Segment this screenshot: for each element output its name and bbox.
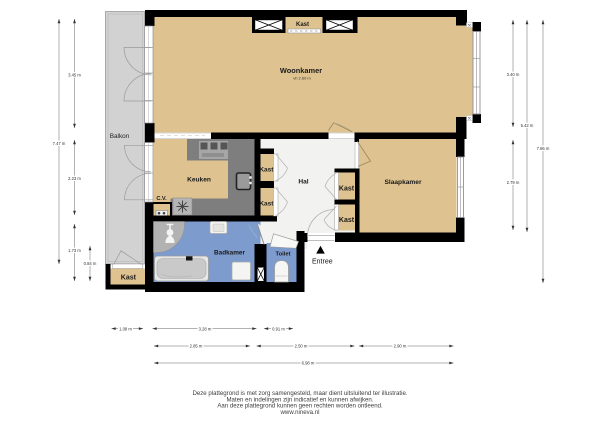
svg-text:0.84 m: 0.84 m <box>84 261 97 266</box>
svg-text:7.86 m: 7.86 m <box>537 146 550 151</box>
svg-text:5.42 m: 5.42 m <box>521 123 534 128</box>
svg-text:50: 50 <box>468 24 472 28</box>
svg-text:Kast: Kast <box>121 274 137 281</box>
svg-text:www.nineva.nl: www.nineva.nl <box>280 409 320 416</box>
svg-text:vh 2.69 m: vh 2.69 m <box>293 76 311 81</box>
svg-text:C.V.: C.V. <box>156 196 167 202</box>
svg-text:7.47 m: 7.47 m <box>53 141 66 146</box>
svg-text:Keuken: Keuken <box>187 177 211 184</box>
svg-text:2.85 m: 2.85 m <box>190 344 203 349</box>
svg-text:2.90 m: 2.90 m <box>394 344 407 349</box>
svg-text:2.23 m: 2.23 m <box>68 176 81 181</box>
svg-text:Kast: Kast <box>296 22 309 28</box>
svg-text:Kast: Kast <box>259 201 274 208</box>
svg-text:Kast: Kast <box>259 166 274 173</box>
svg-text:Entree: Entree <box>312 259 333 266</box>
svg-text:1.73 m: 1.73 m <box>68 248 81 253</box>
svg-text:Woonkamer: Woonkamer <box>280 66 322 75</box>
svg-text:Badkamer: Badkamer <box>214 250 245 257</box>
svg-text:0.91 m: 0.91 m <box>272 326 285 331</box>
svg-text:Toilet: Toilet <box>275 252 290 258</box>
svg-text:Kast: Kast <box>339 186 355 193</box>
svg-text:6.98 m: 6.98 m <box>302 361 315 366</box>
svg-text:50: 50 <box>468 117 472 121</box>
svg-text:Hal: Hal <box>298 179 308 186</box>
svg-text:1.08 m: 1.08 m <box>119 326 132 331</box>
svg-text:Balkon: Balkon <box>110 133 130 140</box>
svg-text:3.28 m: 3.28 m <box>199 326 212 331</box>
svg-text:2.79 m: 2.79 m <box>507 180 520 185</box>
svg-text:Slaapkamer: Slaapkamer <box>384 179 421 186</box>
svg-text:3.40 m: 3.40 m <box>507 72 520 77</box>
svg-text:Kast: Kast <box>339 217 355 224</box>
svg-text:2.50 m: 2.50 m <box>295 344 308 349</box>
svg-text:3.45 m: 3.45 m <box>68 73 81 78</box>
